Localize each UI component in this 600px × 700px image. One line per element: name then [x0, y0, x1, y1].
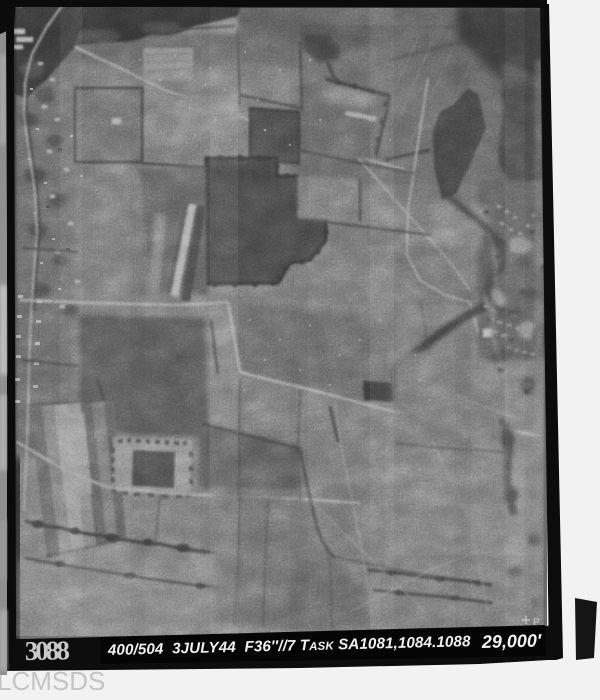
svg-text:LCMSDS: LCMSDS: [0, 666, 105, 696]
svg-text:3088: 3088: [25, 635, 70, 666]
svg-text:29,000′: 29,000′: [481, 631, 543, 652]
